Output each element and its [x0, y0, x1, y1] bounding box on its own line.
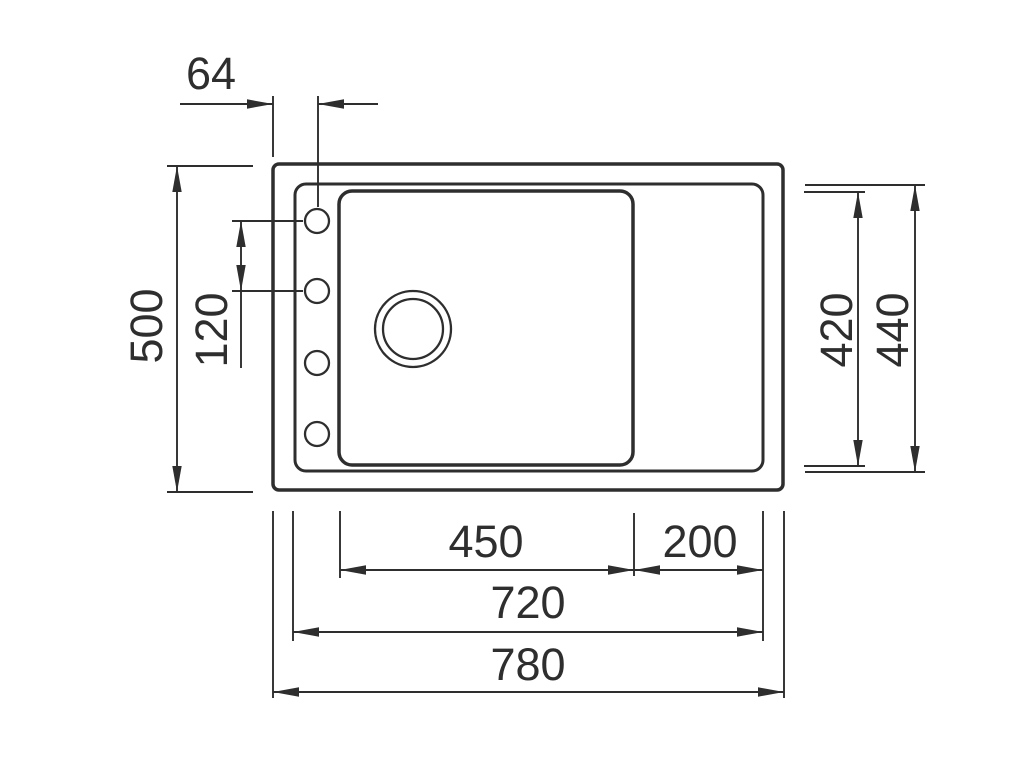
drain-inner-ring: [383, 299, 443, 359]
sink-technical-drawing: 64 500 120 420 440: [0, 0, 1024, 768]
faucet-hole-1: [305, 209, 329, 233]
dimension-bowl-width: 450: [340, 516, 634, 570]
faucet-hole-4: [305, 422, 329, 446]
faucet-hole-3: [305, 351, 329, 375]
sink-outer-edge: [273, 164, 783, 490]
dimension-drainer-width: 200: [634, 516, 763, 570]
sink-inner-rim: [295, 184, 763, 471]
drawing-canvas: 64 500 120 420 440: [0, 0, 1024, 768]
dimension-inner-width: 720: [293, 577, 763, 632]
dimension-label-420: 420: [811, 292, 862, 367]
dimension-label-500: 500: [121, 288, 172, 363]
dimension-label-450: 450: [448, 516, 523, 567]
faucet-hole-2: [305, 279, 329, 303]
sink-body: [273, 164, 783, 490]
drain-outer-ring: [375, 291, 451, 367]
dimension-label-720: 720: [490, 577, 565, 628]
dimension-bowl-depth: 420: [804, 192, 865, 466]
dimension-hole-spacing: 120: [186, 221, 303, 368]
faucet-holes: [305, 209, 329, 446]
dimension-label-120: 120: [186, 292, 237, 367]
drain: [375, 291, 451, 367]
dimension-overall-width: 780: [273, 639, 784, 692]
dimension-label-440: 440: [867, 292, 918, 367]
dimension-label-780: 780: [490, 639, 565, 690]
dimension-label-64: 64: [186, 48, 236, 99]
dimension-label-200: 200: [662, 516, 737, 567]
